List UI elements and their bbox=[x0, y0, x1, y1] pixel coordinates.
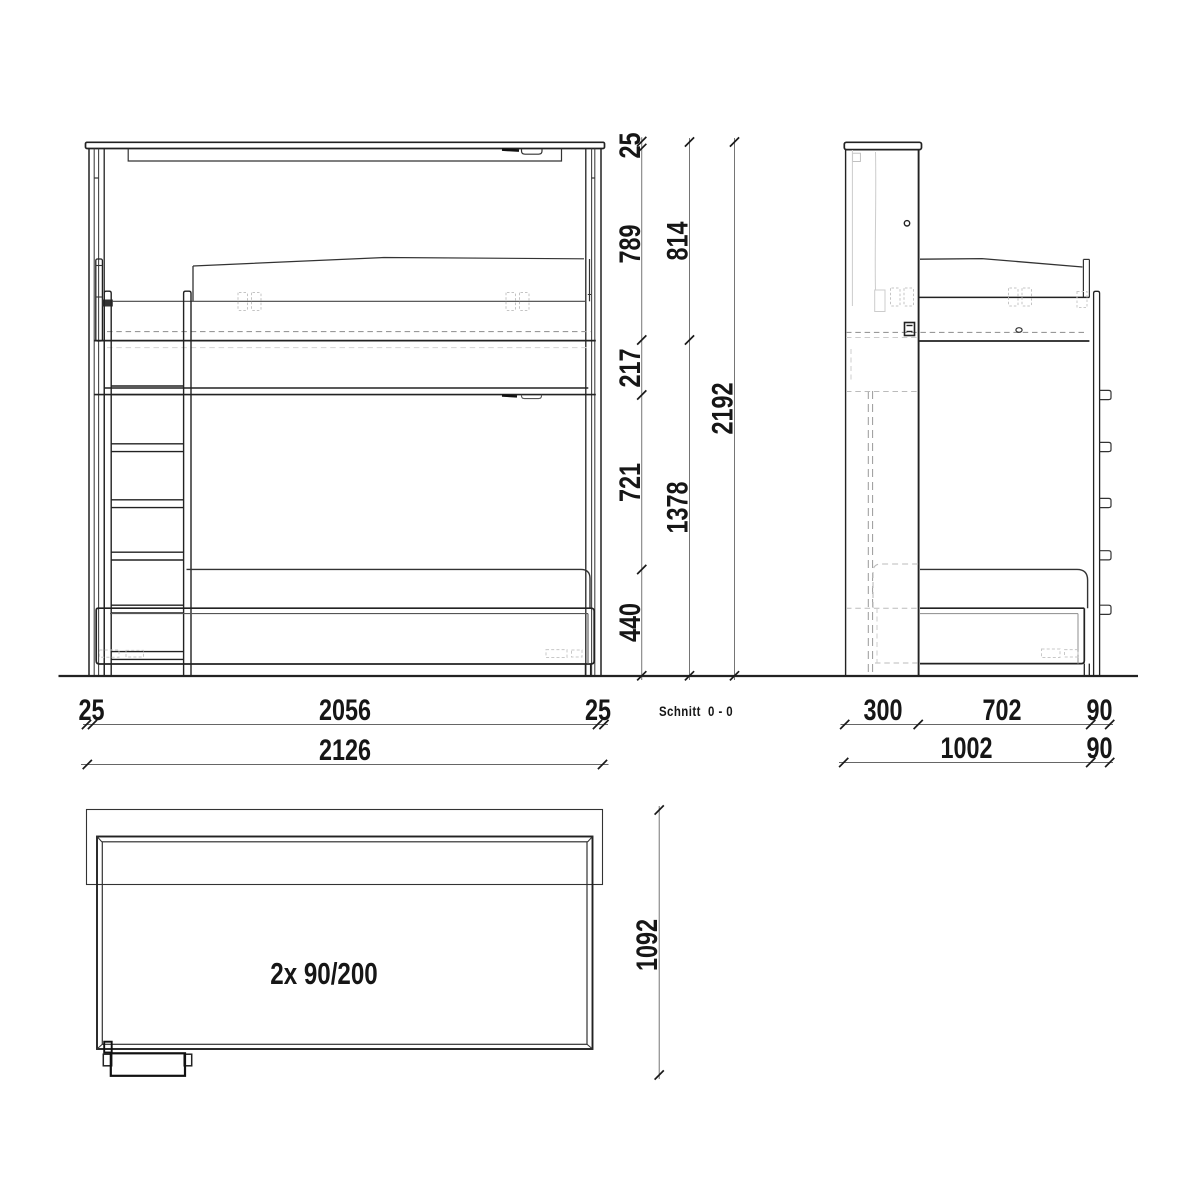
svg-text:721: 721 bbox=[613, 463, 646, 502]
svg-text:300: 300 bbox=[863, 693, 902, 726]
svg-text:1002: 1002 bbox=[940, 731, 992, 764]
svg-text:90: 90 bbox=[1086, 731, 1112, 764]
svg-text:2056: 2056 bbox=[319, 693, 371, 726]
svg-text:2126: 2126 bbox=[319, 733, 371, 766]
svg-text:25: 25 bbox=[585, 693, 611, 726]
svg-text:702: 702 bbox=[982, 693, 1021, 726]
svg-text:1378: 1378 bbox=[661, 481, 694, 533]
svg-text:25: 25 bbox=[613, 132, 646, 158]
svg-text:Schnitt 0 - 0: Schnitt 0 - 0 bbox=[659, 704, 733, 719]
svg-text:814: 814 bbox=[661, 221, 694, 260]
svg-text:789: 789 bbox=[613, 224, 646, 263]
svg-text:2x 90/200: 2x 90/200 bbox=[270, 956, 378, 991]
svg-text:25: 25 bbox=[78, 693, 104, 726]
svg-text:90: 90 bbox=[1086, 693, 1112, 726]
svg-text:440: 440 bbox=[613, 603, 646, 642]
svg-text:2192: 2192 bbox=[706, 382, 739, 434]
svg-text:217: 217 bbox=[613, 348, 646, 387]
svg-text:1092: 1092 bbox=[630, 919, 663, 971]
